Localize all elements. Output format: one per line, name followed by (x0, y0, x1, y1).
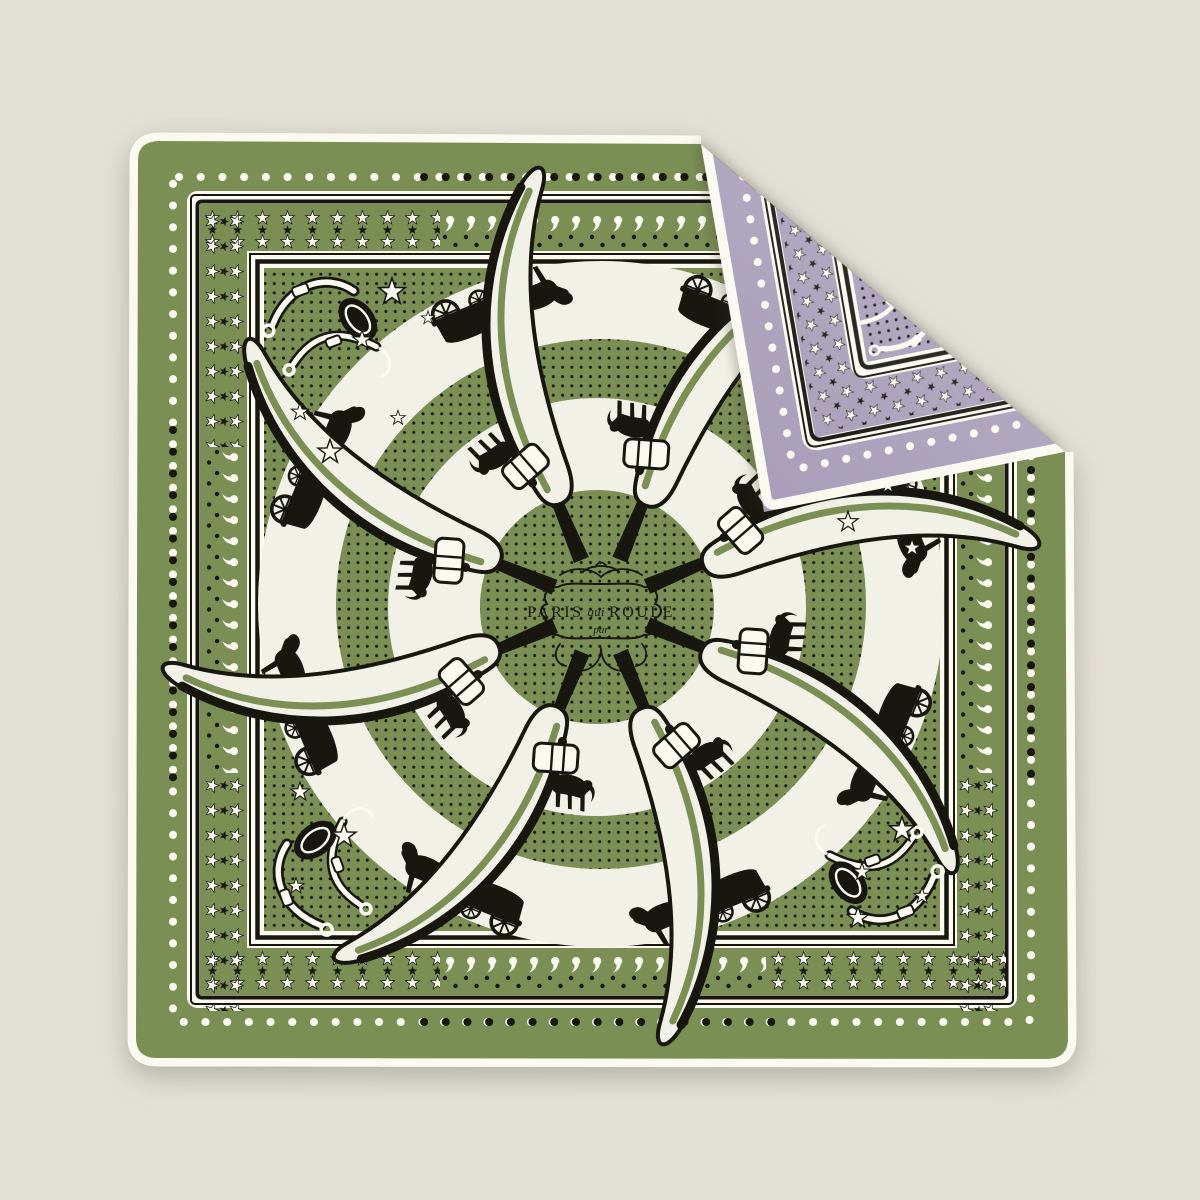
cartouche-subtitle: par (592, 624, 609, 636)
scarf-illustration: PARISquiROULE par (0, 0, 1200, 1200)
cartouche-title: PARISquiROULE (527, 604, 675, 621)
product-photo: PARISquiROULE par (0, 0, 1200, 1200)
